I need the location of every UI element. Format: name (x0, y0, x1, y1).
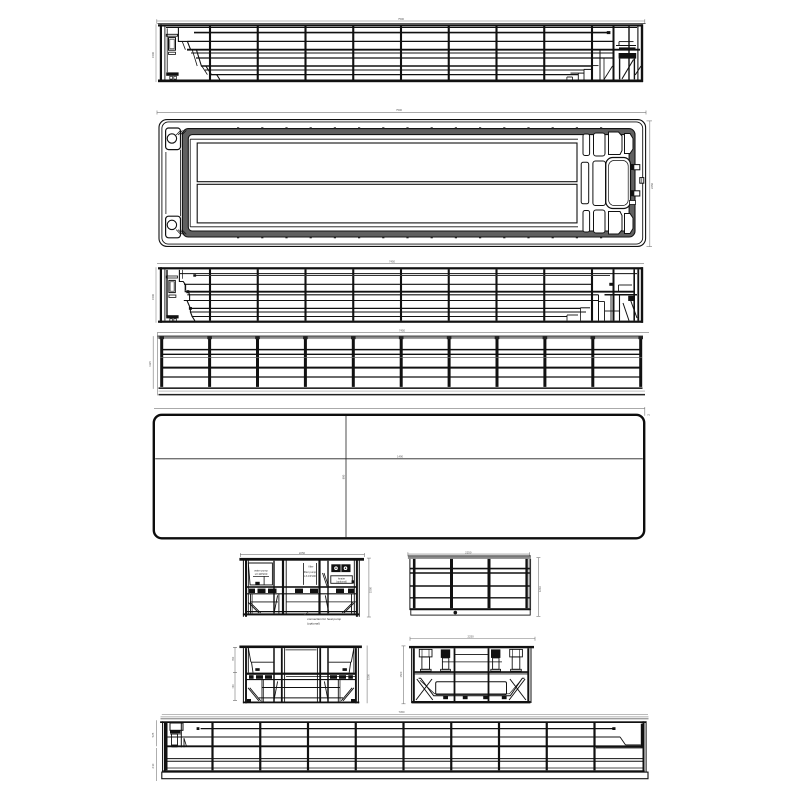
svg-text:1500: 1500 (369, 586, 373, 593)
svg-text:1500: 1500 (151, 52, 155, 58)
svg-text:890: 890 (341, 474, 345, 479)
svg-text:LX-WP200: LX-WP200 (255, 572, 268, 576)
svg-text:760: 760 (231, 656, 235, 661)
svg-text:(optional): (optional) (307, 621, 320, 625)
svg-text:1500: 1500 (399, 671, 403, 677)
svg-text:1500: 1500 (151, 294, 155, 300)
svg-text:7500: 7500 (398, 17, 404, 21)
svg-text:525: 525 (151, 732, 155, 737)
svg-text:1210: 1210 (538, 585, 542, 592)
svg-text:1500: 1500 (367, 674, 371, 680)
svg-text:filter: filter (309, 564, 314, 568)
svg-text:(optional): (optional) (336, 580, 347, 584)
svg-text:610: 610 (151, 763, 155, 768)
svg-text:2250: 2250 (299, 551, 306, 555)
svg-text:LX-FP100: LX-FP100 (304, 574, 316, 578)
svg-text:7450: 7450 (399, 329, 405, 333)
svg-text:7500: 7500 (396, 108, 402, 112)
svg-text:7450: 7450 (389, 260, 395, 264)
svg-text:740: 740 (231, 684, 235, 689)
svg-text:connection for heat pump: connection for heat pump (307, 617, 341, 621)
svg-text:2250: 2250 (467, 635, 474, 639)
svg-text:2250: 2250 (465, 550, 472, 554)
svg-text:2250: 2250 (650, 183, 654, 189)
svg-text:1125: 1125 (148, 361, 152, 367)
svg-text:7450: 7450 (399, 710, 405, 714)
svg-text:water pump: water pump (254, 569, 268, 573)
svg-text:filter pump: filter pump (304, 570, 317, 574)
svg-text:1490: 1490 (397, 454, 403, 458)
